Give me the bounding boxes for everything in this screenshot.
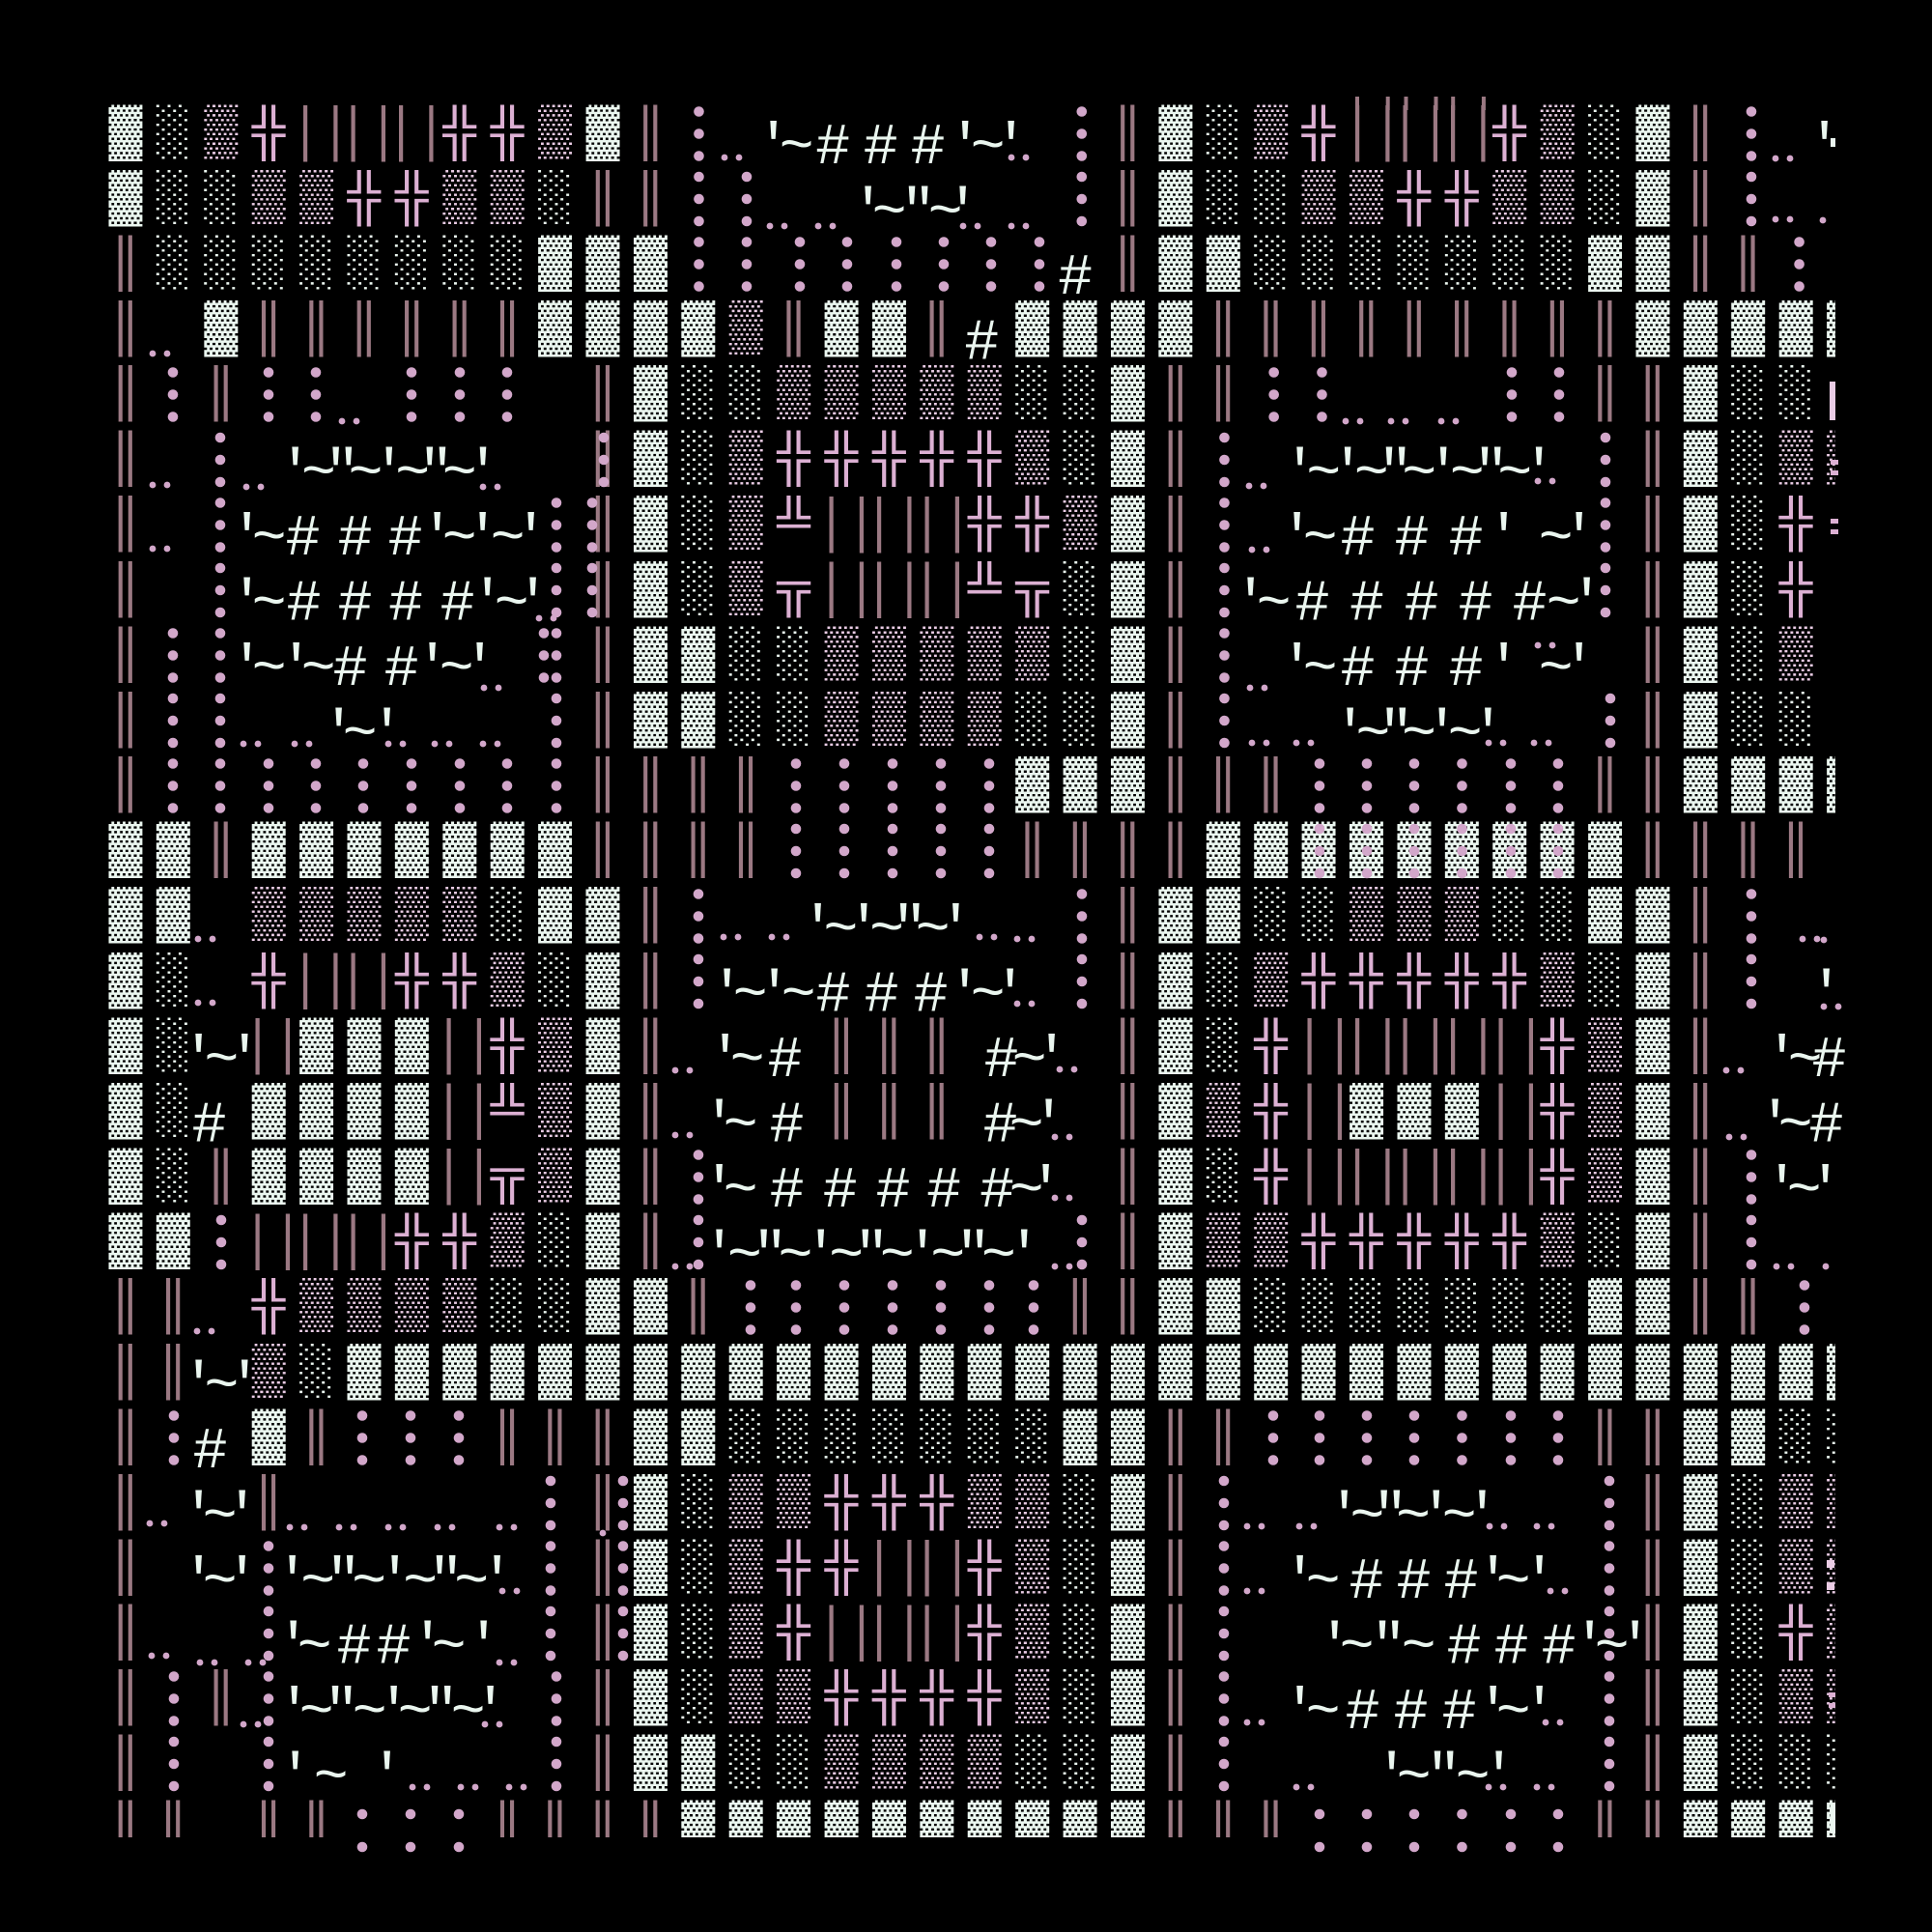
svg-text:#: # bbox=[1809, 1094, 1844, 1160]
svg-text:': ' bbox=[514, 507, 549, 573]
svg-text:': ' bbox=[1007, 1225, 1041, 1291]
svg-text:': ' bbox=[225, 1550, 260, 1616]
svg-text:~: ~ bbox=[298, 1616, 332, 1682]
svg-text:': ' bbox=[370, 703, 405, 769]
svg-text:': ' bbox=[1809, 964, 1844, 1030]
svg-text:#: # bbox=[192, 1094, 227, 1160]
svg-text:': ' bbox=[1470, 703, 1505, 769]
svg-text:~: ~ bbox=[780, 116, 814, 182]
svg-text:#: # bbox=[1513, 573, 1548, 639]
svg-text:~: ~ bbox=[1306, 1681, 1341, 1747]
svg-text:#: # bbox=[1449, 638, 1484, 703]
svg-text:': ' bbox=[466, 442, 500, 508]
svg-text:~: ~ bbox=[252, 507, 287, 573]
svg-text:#: # bbox=[1395, 507, 1430, 573]
svg-text:#: # bbox=[333, 638, 368, 703]
svg-text:': ' bbox=[1562, 638, 1597, 703]
svg-text:~: ~ bbox=[432, 1616, 467, 1682]
svg-text:#: # bbox=[1295, 573, 1330, 639]
svg-text:~: ~ bbox=[1303, 507, 1338, 573]
svg-text:~: ~ bbox=[1257, 573, 1292, 639]
svg-text:~: ~ bbox=[781, 964, 816, 1030]
svg-text:#: # bbox=[1341, 507, 1376, 573]
svg-text:': ' bbox=[1562, 507, 1597, 573]
svg-text:#: # bbox=[768, 1029, 803, 1094]
svg-text:#: # bbox=[384, 638, 419, 703]
svg-text:#: # bbox=[337, 1616, 372, 1682]
svg-text:#: # bbox=[1494, 1616, 1529, 1682]
svg-text:': ' bbox=[225, 1486, 260, 1551]
svg-text:': ' bbox=[227, 1029, 262, 1094]
svg-text:': ' bbox=[994, 116, 1029, 182]
svg-text:': ' bbox=[1482, 1747, 1517, 1812]
svg-text:#: # bbox=[338, 573, 373, 639]
svg-text:': ' bbox=[370, 1747, 405, 1812]
svg-text:~: ~ bbox=[1303, 638, 1338, 703]
svg-text:#: # bbox=[815, 116, 850, 182]
svg-text:#: # bbox=[964, 312, 999, 378]
svg-text:': ' bbox=[516, 573, 551, 639]
svg-text:#: # bbox=[914, 964, 949, 1030]
svg-text:': ' bbox=[1522, 1550, 1557, 1616]
svg-text:~: ~ bbox=[724, 1159, 758, 1225]
svg-text:#: # bbox=[864, 116, 898, 182]
svg-text:~: ~ bbox=[1778, 1094, 1813, 1160]
svg-text:~: ~ bbox=[1402, 1616, 1436, 1682]
svg-text:#: # bbox=[816, 964, 851, 1030]
svg-text:#: # bbox=[1058, 246, 1093, 312]
svg-text:#: # bbox=[1394, 1681, 1429, 1747]
svg-text:#: # bbox=[823, 1159, 858, 1225]
svg-text:': ' bbox=[1808, 1159, 1843, 1225]
svg-text:#: # bbox=[1442, 1681, 1477, 1747]
svg-text:': ' bbox=[480, 1550, 515, 1616]
svg-text:~: ~ bbox=[252, 573, 287, 639]
svg-text:': ' bbox=[1029, 1159, 1064, 1225]
svg-text:': ' bbox=[1487, 638, 1521, 703]
svg-text:~: ~ bbox=[730, 1029, 765, 1094]
svg-text:#: # bbox=[388, 507, 423, 573]
svg-text:#: # bbox=[876, 1159, 911, 1225]
svg-text:~: ~ bbox=[314, 1747, 349, 1812]
svg-text:#: # bbox=[1405, 573, 1439, 639]
svg-text:#: # bbox=[1459, 573, 1493, 639]
svg-text:': ' bbox=[1464, 1486, 1499, 1551]
svg-text:#: # bbox=[1447, 1616, 1482, 1682]
svg-text:': ' bbox=[1487, 507, 1521, 573]
svg-text:': ' bbox=[1521, 442, 1556, 508]
svg-text:#: # bbox=[1395, 638, 1430, 703]
svg-text:~: ~ bbox=[1340, 1616, 1375, 1682]
svg-text:#: # bbox=[338, 507, 373, 573]
svg-text:': ' bbox=[278, 1747, 313, 1812]
svg-text:': ' bbox=[227, 1355, 262, 1421]
svg-text:#: # bbox=[1542, 1616, 1577, 1682]
svg-text:': ' bbox=[1807, 116, 1842, 182]
svg-text:': ' bbox=[1035, 1029, 1069, 1094]
svg-text:': ' bbox=[1032, 1094, 1066, 1160]
svg-text:#: # bbox=[377, 1616, 412, 1682]
svg-text:': ' bbox=[473, 1681, 508, 1747]
svg-text:': ' bbox=[938, 898, 973, 964]
svg-text:#: # bbox=[1444, 1550, 1479, 1616]
svg-text:#: # bbox=[193, 1420, 228, 1486]
svg-text:#: # bbox=[1350, 573, 1384, 639]
svg-text:': ' bbox=[467, 1616, 501, 1682]
svg-text:#: # bbox=[770, 1159, 805, 1225]
svg-text:~: ~ bbox=[724, 1094, 758, 1160]
svg-text:~: ~ bbox=[301, 638, 336, 703]
svg-text:#: # bbox=[1397, 1550, 1432, 1616]
svg-text:#: # bbox=[286, 507, 321, 573]
svg-text:': ' bbox=[1522, 1681, 1557, 1747]
svg-text:#: # bbox=[770, 1094, 805, 1160]
svg-text:#: # bbox=[388, 573, 423, 639]
svg-text:': ' bbox=[1618, 1616, 1653, 1682]
svg-text:#: # bbox=[1449, 507, 1484, 573]
svg-text:#: # bbox=[1346, 1681, 1380, 1747]
svg-text:#: # bbox=[926, 1159, 961, 1225]
svg-text:': ' bbox=[993, 964, 1028, 1030]
svg-text:': ' bbox=[463, 638, 497, 703]
svg-text:#: # bbox=[1341, 638, 1376, 703]
svg-text:#: # bbox=[287, 573, 322, 639]
svg-text:~: ~ bbox=[1306, 1550, 1341, 1616]
svg-text:': ' bbox=[1570, 573, 1605, 639]
svg-text:#: # bbox=[1812, 1029, 1847, 1094]
svg-text:#: # bbox=[865, 964, 899, 1030]
svg-text:': ' bbox=[946, 182, 980, 247]
svg-text:#: # bbox=[1350, 1550, 1384, 1616]
svg-text:#: # bbox=[911, 116, 946, 182]
